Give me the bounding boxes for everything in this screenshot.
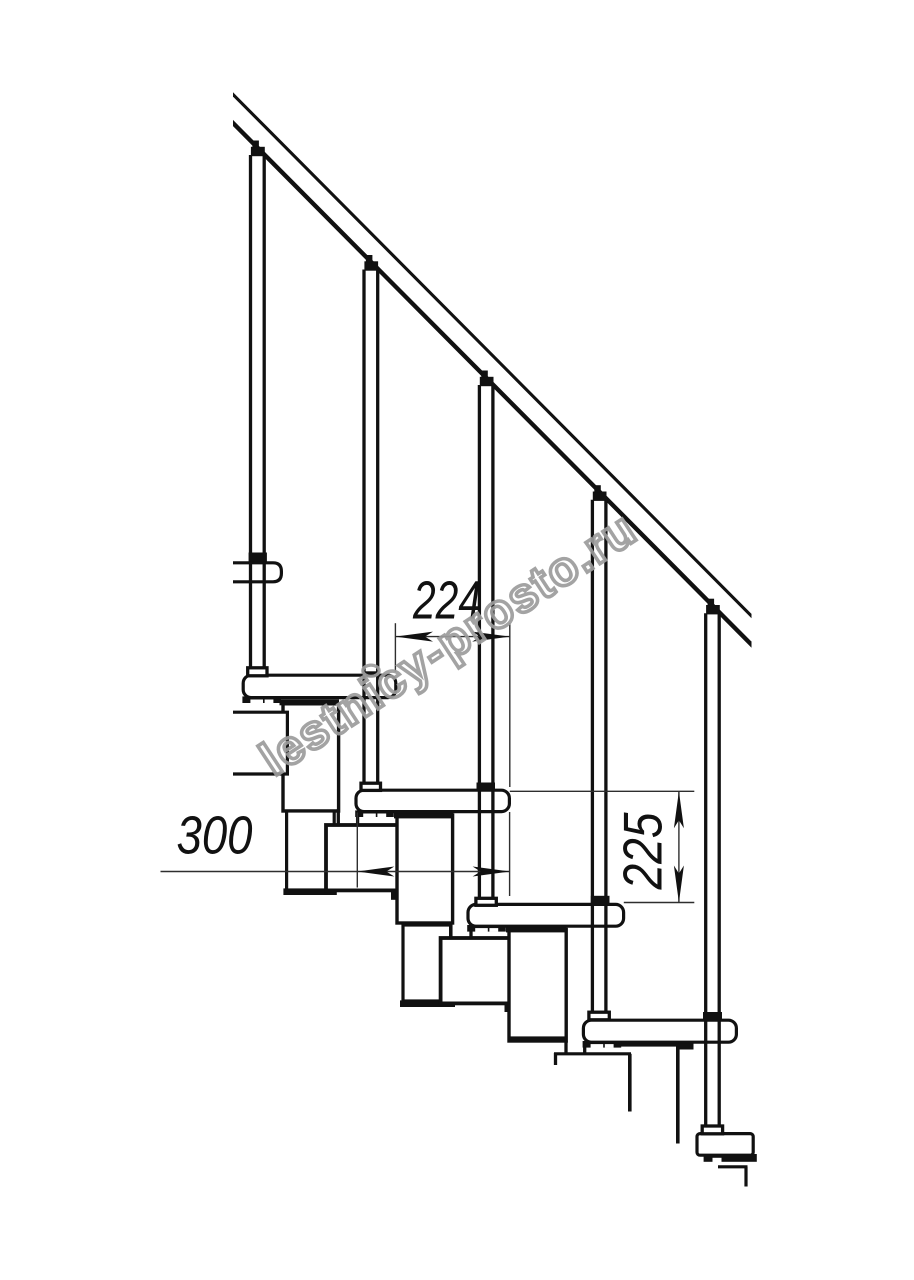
svg-text:300: 300 (177, 806, 253, 866)
svg-text:225: 225 (612, 812, 674, 890)
